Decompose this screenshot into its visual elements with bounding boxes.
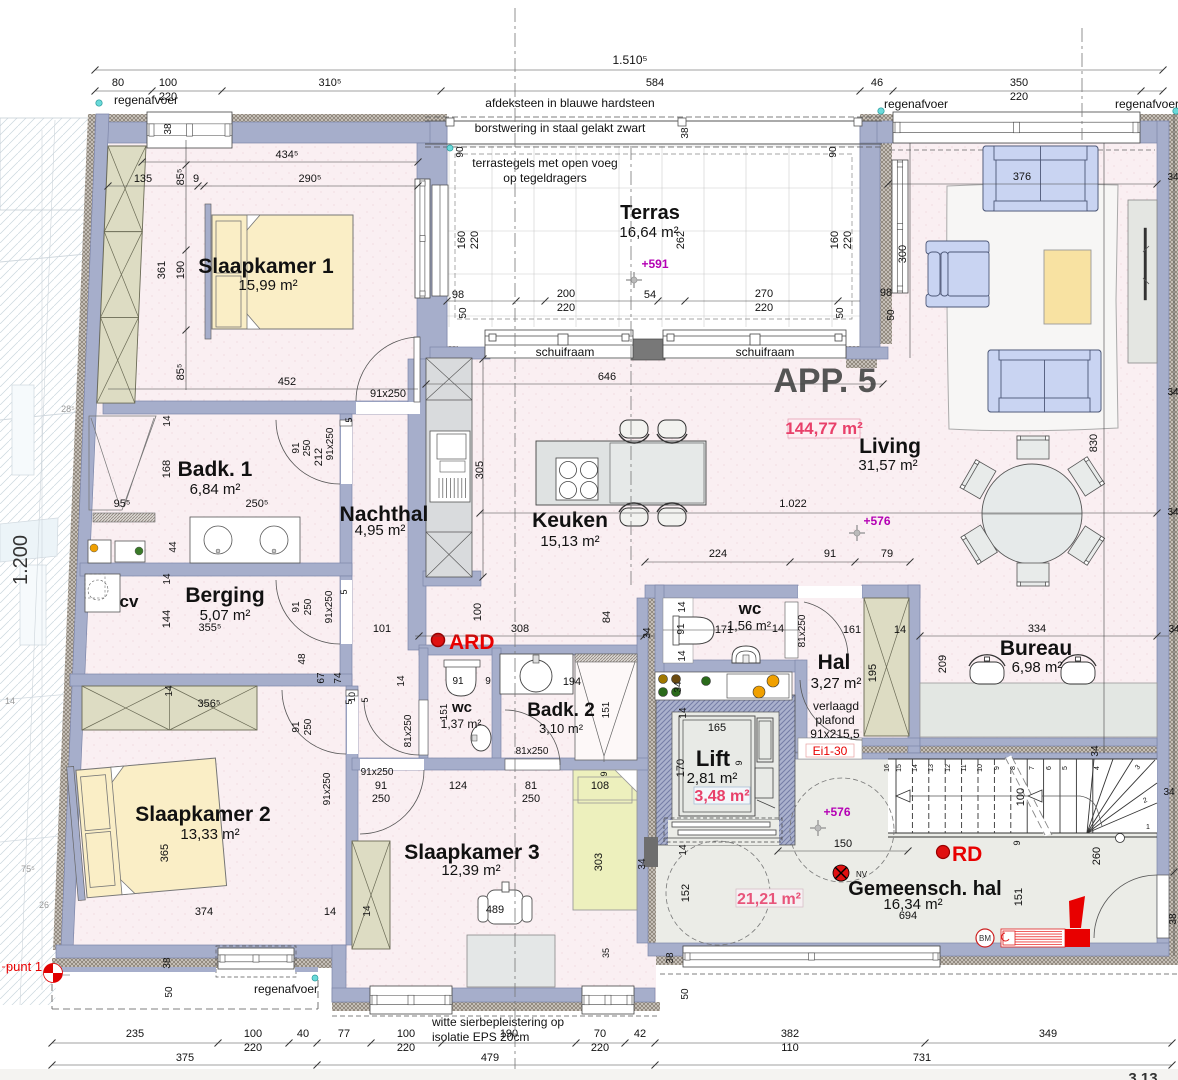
svg-text:14: 14 xyxy=(324,906,336,918)
svg-text:34: 34 xyxy=(1167,507,1178,518)
svg-text:85⁵: 85⁵ xyxy=(175,169,187,186)
svg-text:50: 50 xyxy=(886,309,897,321)
svg-text:91x215,5: 91x215,5 xyxy=(810,727,860,741)
svg-text:220: 220 xyxy=(591,1042,609,1054)
svg-text:124: 124 xyxy=(449,780,467,792)
svg-text:regenafvoer: regenafvoer xyxy=(884,97,948,111)
svg-text:regenafvoer: regenafvoer xyxy=(254,982,318,996)
svg-text:5: 5 xyxy=(339,589,349,594)
svg-text:91: 91 xyxy=(291,721,302,733)
svg-text:375: 375 xyxy=(176,1052,194,1064)
svg-text:101: 101 xyxy=(373,623,391,635)
svg-text:14: 14 xyxy=(162,573,173,585)
svg-text:80: 80 xyxy=(112,77,124,89)
svg-text:10: 10 xyxy=(347,692,357,702)
svg-text:borstwering in staal gelakt zw: borstwering in staal gelakt zwart xyxy=(475,121,646,135)
svg-text:Terras: Terras xyxy=(620,202,680,224)
svg-text:9: 9 xyxy=(485,676,491,687)
svg-text:2,81 m²: 2,81 m² xyxy=(687,770,738,787)
svg-text:40: 40 xyxy=(297,1028,309,1040)
svg-text:100: 100 xyxy=(159,77,177,89)
svg-text:160: 160 xyxy=(829,231,841,249)
svg-text:14: 14 xyxy=(912,764,919,772)
svg-text:14: 14 xyxy=(164,685,175,697)
svg-text:plafond: plafond xyxy=(815,713,854,727)
svg-text:14: 14 xyxy=(894,624,906,636)
svg-text:584: 584 xyxy=(646,77,664,89)
svg-text:81x250: 81x250 xyxy=(403,714,414,747)
svg-text:434⁵: 434⁵ xyxy=(276,149,299,161)
svg-text:100: 100 xyxy=(1015,788,1027,806)
svg-text:452: 452 xyxy=(278,376,296,388)
svg-text:9: 9 xyxy=(734,760,744,765)
svg-text:8: 8 xyxy=(1010,766,1017,770)
svg-text:cv: cv xyxy=(120,592,139,611)
svg-text:305: 305 xyxy=(474,461,486,479)
svg-text:209: 209 xyxy=(937,655,949,673)
svg-text:75⁵: 75⁵ xyxy=(21,864,35,874)
svg-text:21,21 m²: 21,21 m² xyxy=(737,891,801,908)
svg-text:110: 110 xyxy=(781,1042,799,1054)
svg-text:98: 98 xyxy=(880,287,892,299)
svg-text:220: 220 xyxy=(1010,91,1028,103)
svg-text:220: 220 xyxy=(469,231,481,249)
svg-text:38: 38 xyxy=(162,957,173,969)
svg-text:365: 365 xyxy=(159,844,171,862)
svg-text:1: 1 xyxy=(1146,824,1150,831)
svg-text:punt 1: punt 1 xyxy=(6,959,42,974)
svg-text:6: 6 xyxy=(1046,766,1053,770)
svg-text:220: 220 xyxy=(557,302,575,314)
svg-text:schuifraam: schuifraam xyxy=(536,345,595,359)
svg-text:38: 38 xyxy=(163,123,174,135)
svg-text:160: 160 xyxy=(456,231,468,249)
svg-text:171: 171 xyxy=(715,624,733,636)
svg-text:Badk. 2: Badk. 2 xyxy=(527,700,595,721)
svg-text:26: 26 xyxy=(39,900,49,910)
svg-text:91: 91 xyxy=(676,623,687,635)
svg-text:42: 42 xyxy=(634,1028,646,1040)
svg-text:Keuken: Keuken xyxy=(532,509,608,532)
svg-text:7: 7 xyxy=(1029,766,1036,770)
svg-text:90: 90 xyxy=(828,146,839,158)
svg-text:81: 81 xyxy=(525,780,537,792)
svg-text:165: 165 xyxy=(708,722,726,734)
svg-text:81x250: 81x250 xyxy=(516,746,549,757)
svg-text:361: 361 xyxy=(156,261,168,279)
svg-text:334: 334 xyxy=(1028,623,1046,635)
svg-text:9: 9 xyxy=(994,766,1001,770)
svg-text:3,27 m²: 3,27 m² xyxy=(811,675,862,692)
svg-text:4: 4 xyxy=(1094,766,1101,770)
svg-text:731: 731 xyxy=(913,1052,931,1064)
svg-text:Badk. 1: Badk. 1 xyxy=(178,458,253,481)
svg-text:151: 151 xyxy=(439,703,450,720)
svg-text:6,98 m²: 6,98 m² xyxy=(1012,659,1063,676)
svg-text:13,33 m²: 13,33 m² xyxy=(180,826,239,843)
svg-text:3.13: 3.13 xyxy=(1128,1070,1157,1080)
svg-text:5: 5 xyxy=(360,697,370,702)
svg-text:Ei1-30: Ei1-30 xyxy=(813,744,848,758)
svg-text:afdeksteen in blauwe hardsteen: afdeksteen in blauwe hardsteen xyxy=(485,96,654,110)
svg-text:3,48 m²: 3,48 m² xyxy=(694,788,749,805)
svg-text:91: 91 xyxy=(291,442,302,454)
svg-text:10: 10 xyxy=(977,764,984,772)
svg-text:15,99 m²: 15,99 m² xyxy=(238,277,297,294)
svg-text:144,77 m²: 144,77 m² xyxy=(785,419,863,438)
svg-text:38: 38 xyxy=(665,952,676,964)
svg-text:151: 151 xyxy=(601,701,612,718)
svg-text:356⁵: 356⁵ xyxy=(198,698,221,710)
svg-text:35: 35 xyxy=(601,948,611,958)
svg-text:verlaagd: verlaagd xyxy=(813,699,859,713)
svg-text:91x250: 91x250 xyxy=(324,590,335,623)
svg-text:195: 195 xyxy=(867,664,879,682)
svg-text:+576: +576 xyxy=(863,514,890,528)
svg-text:310⁵: 310⁵ xyxy=(319,77,342,89)
svg-text:50: 50 xyxy=(680,988,691,1000)
svg-text:wc: wc xyxy=(451,699,472,716)
svg-text:1.510⁵: 1.510⁵ xyxy=(612,53,647,67)
svg-text:34: 34 xyxy=(1167,172,1178,183)
svg-text:91: 91 xyxy=(375,780,387,792)
svg-text:91x250: 91x250 xyxy=(361,767,394,778)
svg-text:67: 67 xyxy=(316,672,327,684)
svg-text:374: 374 xyxy=(195,906,213,918)
svg-text:5: 5 xyxy=(344,417,354,422)
svg-text:168: 168 xyxy=(161,460,173,478)
svg-text:12: 12 xyxy=(945,764,952,772)
svg-text:wc: wc xyxy=(738,599,762,618)
svg-text:50: 50 xyxy=(164,986,175,998)
svg-text:14: 14 xyxy=(396,675,407,687)
svg-text:190: 190 xyxy=(175,261,187,279)
svg-text:151: 151 xyxy=(1013,888,1025,906)
svg-text:100: 100 xyxy=(472,603,484,621)
svg-text:489: 489 xyxy=(486,904,504,916)
svg-text:220: 220 xyxy=(244,1042,262,1054)
svg-text:270: 270 xyxy=(755,288,773,300)
svg-text:91: 91 xyxy=(452,676,464,687)
svg-text:50: 50 xyxy=(458,307,469,319)
svg-text:Lift: Lift xyxy=(696,746,731,771)
svg-text:terrastegels met open voeg: terrastegels met open voeg xyxy=(472,156,617,170)
svg-text:Slaapkamer 3: Slaapkamer 3 xyxy=(404,841,539,864)
svg-text:91x250: 91x250 xyxy=(370,388,406,400)
svg-text:+591: +591 xyxy=(641,257,668,271)
svg-text:34: 34 xyxy=(1090,745,1101,757)
svg-text:194: 194 xyxy=(563,676,581,688)
svg-text:1,56 m²: 1,56 m² xyxy=(727,618,772,633)
svg-text:250: 250 xyxy=(372,793,390,805)
svg-text:250: 250 xyxy=(303,598,314,615)
svg-text:48: 48 xyxy=(297,653,308,665)
svg-text:220: 220 xyxy=(842,231,854,249)
svg-text:BM: BM xyxy=(979,934,991,943)
svg-text:70: 70 xyxy=(594,1028,606,1040)
svg-text:91: 91 xyxy=(824,548,836,560)
svg-text:646: 646 xyxy=(598,371,616,383)
svg-text:85⁵: 85⁵ xyxy=(175,364,187,381)
svg-text:9: 9 xyxy=(599,771,609,776)
svg-text:108: 108 xyxy=(591,780,609,792)
svg-text:300: 300 xyxy=(897,245,909,263)
svg-text:14: 14 xyxy=(678,844,689,856)
svg-text:witte sierbepleistering op: witte sierbepleistering op xyxy=(431,1015,564,1029)
svg-text:14: 14 xyxy=(5,696,15,706)
svg-text:250: 250 xyxy=(302,439,313,456)
svg-text:98: 98 xyxy=(452,289,464,301)
svg-text:479: 479 xyxy=(481,1052,499,1064)
svg-text:79: 79 xyxy=(881,548,893,560)
svg-text:Slaapkamer 1: Slaapkamer 1 xyxy=(198,255,334,278)
svg-text:220: 220 xyxy=(159,91,177,103)
svg-text:144: 144 xyxy=(161,610,173,628)
svg-text:95⁵: 95⁵ xyxy=(114,498,131,510)
svg-text:34: 34 xyxy=(1168,624,1178,635)
svg-text:250: 250 xyxy=(303,718,314,735)
svg-text:170: 170 xyxy=(675,759,687,777)
svg-text:34: 34 xyxy=(673,681,684,693)
svg-text:RD: RD xyxy=(952,843,982,866)
svg-text:212: 212 xyxy=(313,448,325,466)
svg-text:regenafvoer: regenafvoer xyxy=(1115,97,1178,111)
svg-text:38: 38 xyxy=(680,127,691,139)
svg-text:81x250: 81x250 xyxy=(797,614,808,647)
svg-text:5: 5 xyxy=(1062,766,1069,770)
svg-text:APP. 5: APP. 5 xyxy=(773,362,876,400)
svg-text:14: 14 xyxy=(678,707,689,719)
svg-text:6,84 m²: 6,84 m² xyxy=(190,481,241,498)
svg-text:Slaapkamer 2: Slaapkamer 2 xyxy=(135,803,270,826)
svg-text:54: 54 xyxy=(644,289,656,301)
svg-text:9: 9 xyxy=(1012,840,1022,845)
svg-text:220: 220 xyxy=(755,302,773,314)
svg-text:15: 15 xyxy=(896,764,903,772)
svg-text:34: 34 xyxy=(642,627,653,639)
svg-text:44: 44 xyxy=(168,541,179,553)
svg-text:100: 100 xyxy=(397,1028,415,1040)
svg-text:77: 77 xyxy=(338,1028,350,1040)
svg-text:9: 9 xyxy=(193,173,199,185)
svg-text:355⁵: 355⁵ xyxy=(199,622,222,634)
svg-text:13: 13 xyxy=(928,764,935,772)
svg-text:4,95 m²: 4,95 m² xyxy=(355,522,406,539)
svg-text:161: 161 xyxy=(843,624,861,636)
svg-text:ARD: ARD xyxy=(449,631,495,654)
svg-text:262: 262 xyxy=(675,231,687,249)
svg-text:14: 14 xyxy=(677,650,688,662)
svg-text:135: 135 xyxy=(134,173,152,185)
svg-text:14: 14 xyxy=(677,601,688,613)
svg-text:op tegeldragers: op tegeldragers xyxy=(503,171,586,185)
svg-text:Bureau: Bureau xyxy=(1000,637,1072,660)
svg-text:46: 46 xyxy=(871,77,883,89)
svg-text:235: 235 xyxy=(126,1028,144,1040)
svg-text:200: 200 xyxy=(557,288,575,300)
svg-text:38: 38 xyxy=(1168,913,1178,925)
svg-text:830: 830 xyxy=(1088,434,1100,452)
svg-text:Living: Living xyxy=(859,435,921,458)
svg-text:150: 150 xyxy=(834,838,852,850)
svg-text:74: 74 xyxy=(333,672,344,684)
svg-text:+576: +576 xyxy=(823,805,850,819)
svg-text:260: 260 xyxy=(1091,847,1103,865)
svg-text:Berging: Berging xyxy=(185,584,264,607)
svg-text:14: 14 xyxy=(772,623,784,635)
svg-text:350: 350 xyxy=(1010,77,1028,89)
svg-text:11: 11 xyxy=(961,764,968,771)
svg-text:91x250: 91x250 xyxy=(322,772,333,805)
svg-text:34: 34 xyxy=(1163,787,1175,798)
svg-text:84: 84 xyxy=(601,611,613,623)
svg-text:250⁵: 250⁵ xyxy=(246,498,269,510)
svg-text:250: 250 xyxy=(522,793,540,805)
svg-text:3,10 m²: 3,10 m² xyxy=(539,721,584,736)
svg-text:1.022: 1.022 xyxy=(779,498,807,510)
svg-text:schuifraam: schuifraam xyxy=(736,345,795,359)
svg-text:91: 91 xyxy=(291,601,302,613)
svg-text:14: 14 xyxy=(362,905,373,917)
svg-text:694: 694 xyxy=(899,910,917,922)
svg-text:308: 308 xyxy=(511,623,529,635)
svg-text:50: 50 xyxy=(835,307,846,319)
svg-text:152: 152 xyxy=(680,884,692,902)
svg-text:15,13 m²: 15,13 m² xyxy=(540,533,599,550)
svg-text:376: 376 xyxy=(1013,171,1031,183)
svg-text:100: 100 xyxy=(244,1028,262,1040)
svg-text:190: 190 xyxy=(500,1028,518,1040)
svg-text:349: 349 xyxy=(1039,1028,1057,1040)
svg-text:16: 16 xyxy=(884,764,891,772)
svg-text:34: 34 xyxy=(637,858,648,870)
svg-text:382: 382 xyxy=(781,1028,799,1040)
svg-text:12,39 m²: 12,39 m² xyxy=(441,862,500,879)
svg-text:34: 34 xyxy=(1167,387,1178,398)
svg-text:14: 14 xyxy=(162,415,173,427)
svg-text:290⁵: 290⁵ xyxy=(299,173,322,185)
svg-text:31,57 m²: 31,57 m² xyxy=(858,457,917,474)
svg-text:16,64 m²: 16,64 m² xyxy=(619,224,678,241)
svg-text:303: 303 xyxy=(593,853,605,871)
svg-text:220: 220 xyxy=(397,1042,415,1054)
svg-text:224: 224 xyxy=(709,548,727,560)
svg-text:90: 90 xyxy=(455,146,466,158)
svg-text:Hal: Hal xyxy=(818,651,851,674)
svg-text:28⁵: 28⁵ xyxy=(61,404,75,414)
svg-text:91x250: 91x250 xyxy=(325,427,336,460)
svg-text:1.200: 1.200 xyxy=(10,535,32,585)
